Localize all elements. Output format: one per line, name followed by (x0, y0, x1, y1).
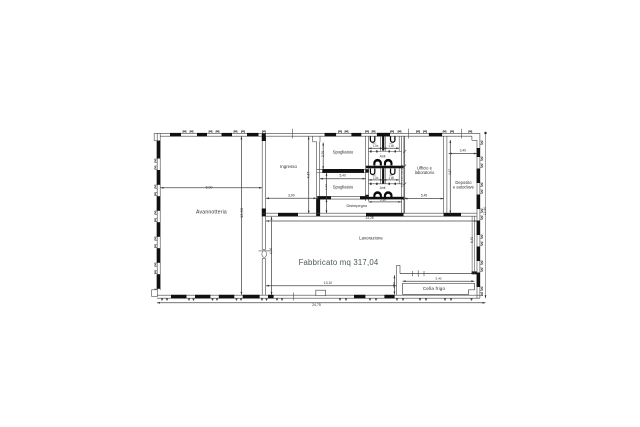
svg-text:e autoclave: e autoclave (453, 185, 475, 190)
svg-text:12,90: 12,90 (239, 207, 244, 218)
svg-text:3,90: 3,90 (288, 193, 295, 197)
svg-text:Fabbricato mq 317,04: Fabbricato mq 317,04 (299, 258, 379, 267)
svg-text:Anti: Anti (380, 154, 386, 158)
svg-text:24,75: 24,75 (312, 303, 321, 307)
svg-text:4,17: 4,17 (448, 169, 452, 175)
svg-text:Lavorazione: Lavorazione (359, 236, 383, 241)
svg-text:Disimpegno: Disimpegno (347, 203, 368, 208)
svg-text:12,90: 12,90 (483, 207, 487, 216)
svg-text:3,40: 3,40 (460, 149, 467, 153)
svg-text:Ingresso: Ingresso (280, 164, 297, 169)
svg-text:1,50: 1,50 (392, 282, 396, 288)
svg-text:WC: WC (389, 174, 393, 178)
svg-text:Spogliatoio: Spogliatoio (333, 149, 354, 154)
svg-text:WC: WC (372, 174, 376, 178)
svg-text:5,40: 5,40 (435, 276, 441, 280)
svg-text:4,47: 4,47 (306, 172, 310, 179)
svg-text:6,00: 6,00 (206, 186, 213, 190)
svg-text:1,14: 1,14 (324, 184, 328, 190)
svg-text:laboratorio: laboratorio (415, 170, 435, 175)
svg-text:1,10 1,06 1,30 1,00: 1,10 1,06 1,30 1,00 (400, 164, 404, 187)
svg-text:6,40: 6,40 (470, 237, 474, 243)
svg-text:Spogliatoio: Spogliatoio (333, 184, 354, 189)
svg-text:WC: WC (372, 142, 376, 146)
svg-text:2,70: 2,70 (321, 151, 325, 157)
svg-text:Anti: Anti (380, 186, 386, 190)
svg-text:2,25: 2,25 (380, 198, 386, 202)
svg-text:10,10: 10,10 (324, 281, 332, 285)
svg-text:Cella frigo: Cella frigo (423, 286, 446, 291)
svg-text:WC: WC (389, 142, 393, 146)
svg-text:Avannotteria: Avannotteria (196, 209, 227, 215)
svg-text:4,50: 4,50 (269, 248, 273, 255)
svg-text:5,40: 5,40 (339, 174, 346, 178)
svg-text:14,28: 14,28 (365, 216, 373, 220)
svg-text:5,45: 5,45 (421, 194, 428, 198)
